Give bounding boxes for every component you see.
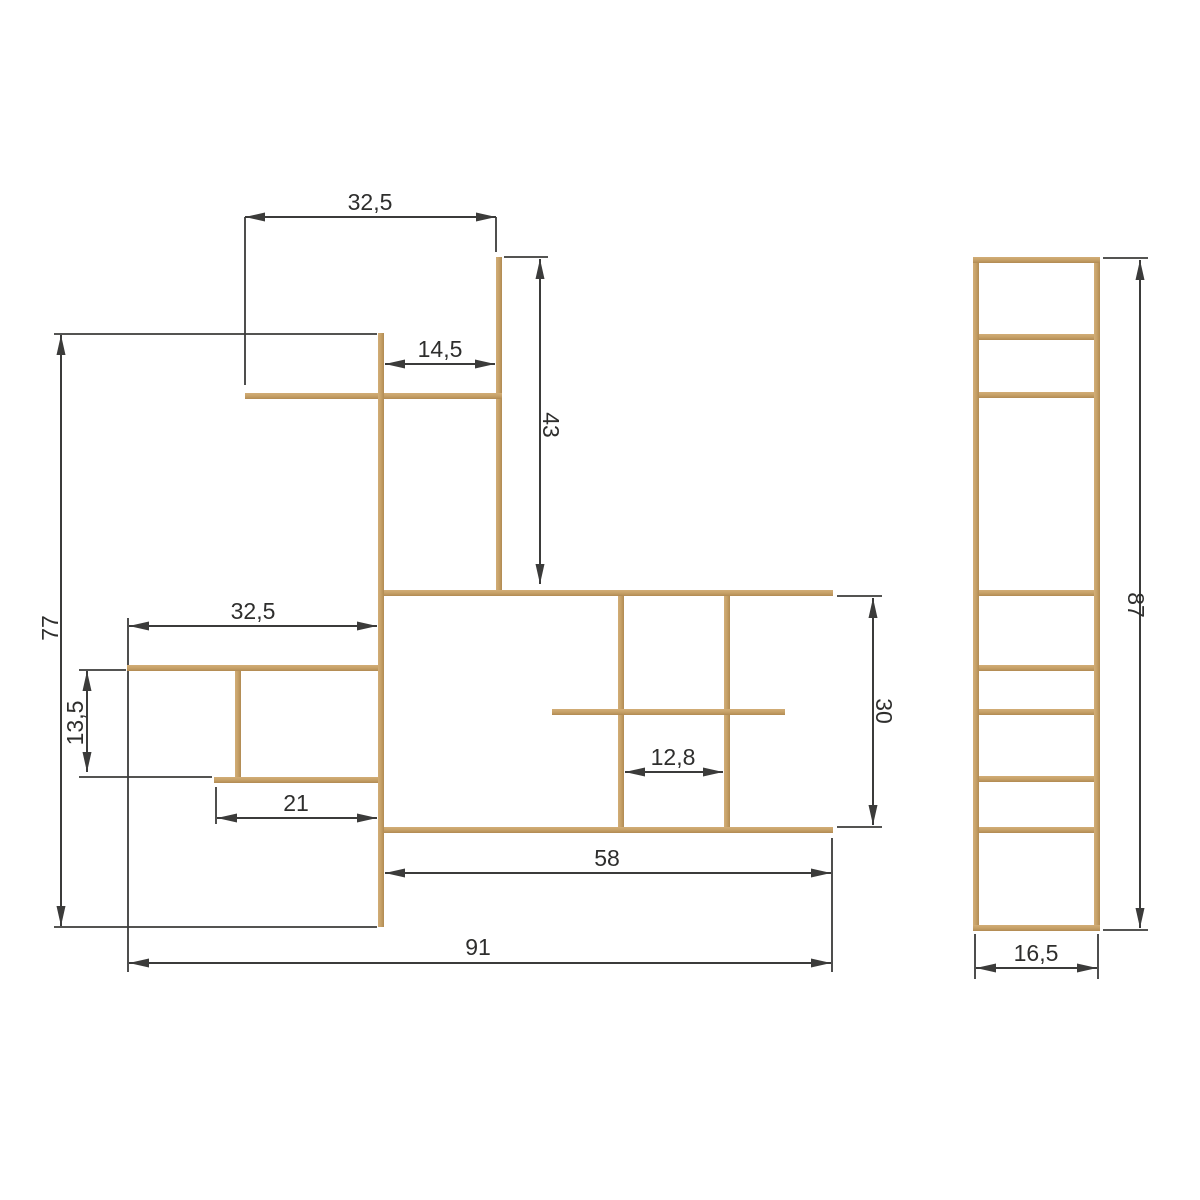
piece-side-rung-5 (979, 665, 1094, 671)
dimension-label-overall-width: 91 (465, 934, 491, 960)
piece-side-rung-6 (979, 709, 1094, 715)
dimension-label-left-lower-shelf-width: 21 (283, 790, 309, 816)
piece-side-rung-top (973, 257, 1100, 263)
furniture-dimension-drawing: 32,514,5437732,513,5213012,858918716,5 (0, 0, 1200, 1200)
piece-mid-inner-shelf (552, 709, 785, 715)
piece-side-rung-3 (979, 392, 1094, 398)
dimension-label-overall-height: 77 (37, 615, 63, 641)
piece-left-upper-shelf (127, 665, 378, 671)
piece-side-rung-4 (979, 590, 1094, 596)
piece-side-right-rail (1094, 257, 1100, 931)
piece-side-rung-8 (979, 827, 1094, 833)
dimension-label-left-cubby-height: 13,5 (62, 701, 88, 746)
dimension-label-side-depth: 16,5 (1014, 940, 1059, 966)
piece-mid-bottom-shelf (384, 827, 833, 833)
piece-side-rung-2 (979, 334, 1094, 340)
dimension-label-mid-cubby-width: 12,8 (651, 744, 696, 770)
piece-side-rung-bottom (973, 925, 1100, 931)
piece-side-left-rail (973, 257, 979, 931)
dimension-label-upper-inset-width: 14,5 (418, 336, 463, 362)
piece-main-post (378, 333, 384, 927)
dimension-label-side-height: 87 (1123, 592, 1149, 618)
dimension-label-left-shelf-width: 32,5 (231, 598, 276, 624)
dimension-label-upper-shelf-width: 32,5 (348, 189, 393, 215)
dimension-label-mid-section-height: 30 (871, 698, 897, 724)
piece-upper-post (496, 257, 502, 593)
drawing-canvas: 32,514,5437732,513,5213012,858918716,5 (0, 0, 1200, 1200)
piece-upper-shelf (245, 393, 502, 399)
piece-left-lower-shelf (214, 777, 378, 783)
piece-mid-top-shelf (384, 590, 833, 596)
piece-left-divider (235, 671, 241, 777)
dimension-label-upper-post-height: 43 (538, 412, 564, 438)
drawing-background (0, 0, 1200, 1200)
piece-side-rung-7 (979, 776, 1094, 782)
dimension-label-mid-section-width: 58 (594, 845, 620, 871)
